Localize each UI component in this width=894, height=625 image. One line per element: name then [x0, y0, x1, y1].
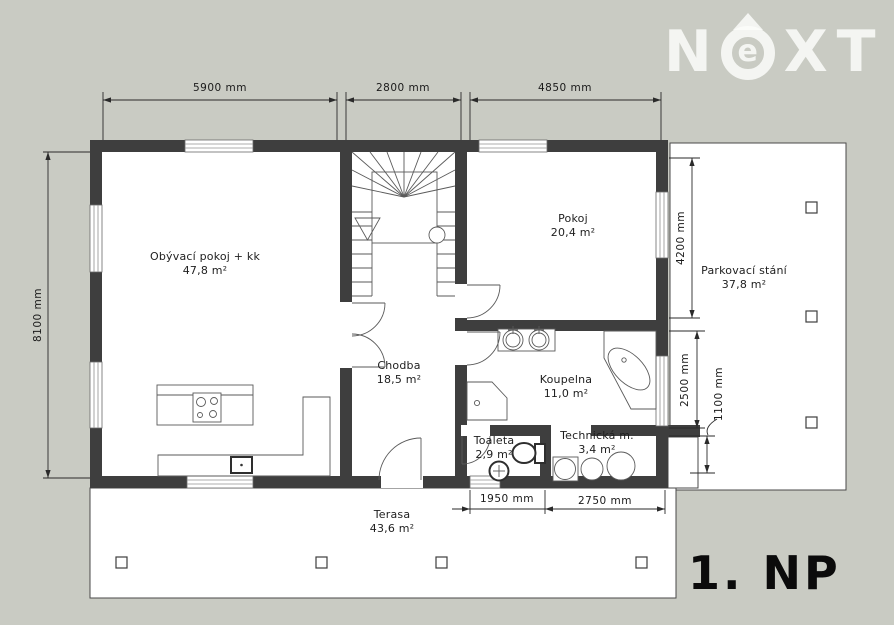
room-name: Toaleta	[474, 434, 515, 448]
floor-title: 1. NP	[688, 546, 841, 600]
window	[187, 476, 253, 488]
next-logo: N e X T	[664, 24, 876, 81]
stove-icon	[193, 393, 221, 422]
dim-left-1: 8100 mm	[32, 288, 44, 342]
room-label-toaleta: Toaleta 2,9 m²	[474, 434, 515, 461]
room-area: 20,4 m²	[551, 226, 596, 240]
room-name: Technická m.	[560, 429, 634, 443]
logo-triangle-icon	[733, 13, 763, 30]
dim-top-3: 4850 mm	[538, 82, 592, 94]
dim-top-1: 5900 mm	[193, 82, 247, 94]
window	[185, 140, 253, 152]
porch-step	[668, 437, 698, 488]
dim-top-2: 2800 mm	[376, 82, 430, 94]
room-area: 18,5 m²	[377, 373, 422, 387]
logo-letter-t: T	[837, 24, 876, 81]
window	[479, 140, 547, 152]
room-name: Koupelna	[540, 373, 593, 387]
room-area: 37,8 m²	[701, 278, 787, 292]
logo-ring-icon: e	[721, 26, 775, 80]
room-label-pokoj: Pokoj 20,4 m²	[551, 212, 596, 239]
dim-right-1: 4200 mm	[675, 211, 687, 265]
logo-letter-x: X	[784, 24, 828, 81]
room-label-parkovani: Parkovací stání 37,8 m²	[701, 264, 787, 291]
appliance-icon	[555, 459, 576, 480]
window	[656, 192, 668, 258]
stair-post-icon	[429, 227, 445, 243]
wc-icon	[513, 443, 546, 463]
room-area: 43,6 m²	[370, 522, 415, 536]
dim-right-2: 2500 mm	[679, 353, 691, 407]
window	[90, 205, 102, 272]
round-basin-icon	[490, 462, 509, 481]
room-name: Obývací pokoj + kk	[150, 250, 260, 264]
window	[656, 356, 668, 426]
logo-letter-n: N	[664, 24, 712, 81]
appliance-icon	[581, 458, 603, 480]
room-label-obyvaci: Obývací pokoj + kk 47,8 m²	[150, 250, 260, 277]
room-name: Parkovací stání	[701, 264, 787, 278]
room-name: Pokoj	[551, 212, 596, 226]
dim-bottom-2: 2750 mm	[578, 495, 632, 507]
plan-drawing	[0, 0, 894, 625]
room-area: 47,8 m²	[150, 264, 260, 278]
room-area: 2,9 m²	[474, 448, 515, 462]
dim-bottom-1: 1950 mm	[480, 493, 534, 505]
floor-plan-canvas: Obývací pokoj + kk 47,8 m² Pokoj 20,4 m²…	[0, 0, 894, 625]
room-label-chodba: Chodba 18,5 m²	[377, 359, 422, 386]
room-name: Terasa	[370, 508, 415, 522]
logo-letter-e: e	[738, 37, 758, 67]
window	[90, 362, 102, 428]
room-label-terasa: Terasa 43,6 m²	[370, 508, 415, 535]
boiler-icon	[607, 452, 635, 480]
room-name: Chodba	[377, 359, 422, 373]
room-label-koupelna: Koupelna 11,0 m²	[540, 373, 593, 400]
dim-right-3: 1100 mm	[713, 367, 725, 421]
room-area: 11,0 m²	[540, 387, 593, 401]
room-label-technicka: Technická m. 3,4 m²	[560, 429, 634, 456]
sink-icon	[231, 457, 252, 473]
room-area: 3,4 m²	[560, 443, 634, 457]
